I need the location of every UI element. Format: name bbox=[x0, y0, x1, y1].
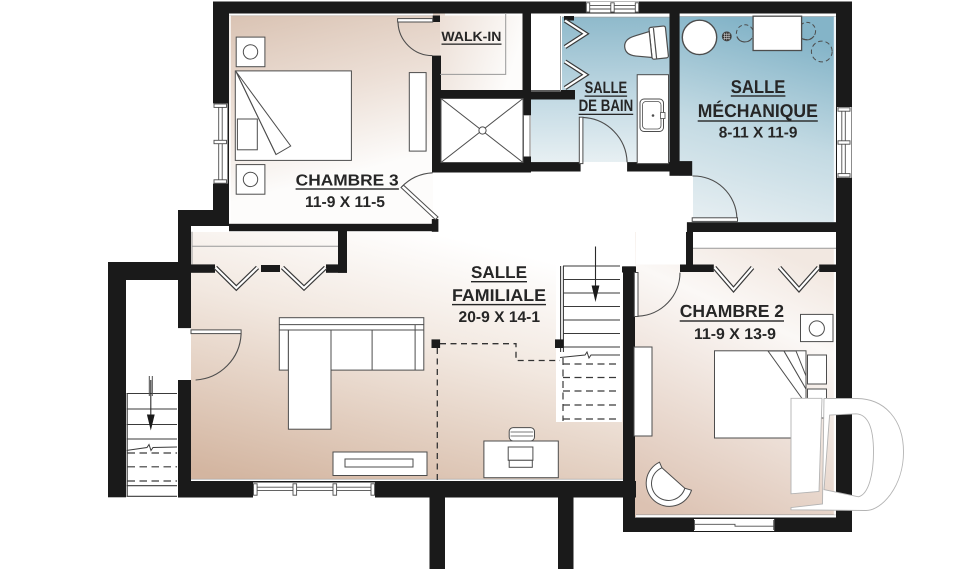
svg-text:CHAMBRE 3: CHAMBRE 3 bbox=[296, 172, 399, 189]
svg-text:SALLE: SALLE bbox=[585, 79, 628, 97]
svg-text:SALLE: SALLE bbox=[471, 263, 527, 282]
svg-text:8-11 X 11-9: 8-11 X 11-9 bbox=[719, 124, 798, 141]
svg-text:20-9 X 14-1: 20-9 X 14-1 bbox=[459, 309, 541, 326]
svg-text:11-9 X 13-9: 11-9 X 13-9 bbox=[694, 326, 776, 343]
svg-text:WALK-IN: WALK-IN bbox=[441, 29, 501, 44]
svg-text:DE BAIN: DE BAIN bbox=[579, 97, 634, 115]
svg-text:FAMILIALE: FAMILIALE bbox=[452, 286, 546, 305]
svg-text:11-9 X 11-5: 11-9 X 11-5 bbox=[305, 194, 385, 211]
svg-text:CHAMBRE 2: CHAMBRE 2 bbox=[680, 301, 785, 321]
svg-text:MÉCHANIQUE: MÉCHANIQUE bbox=[698, 100, 818, 121]
svg-text:SALLE: SALLE bbox=[731, 76, 786, 97]
